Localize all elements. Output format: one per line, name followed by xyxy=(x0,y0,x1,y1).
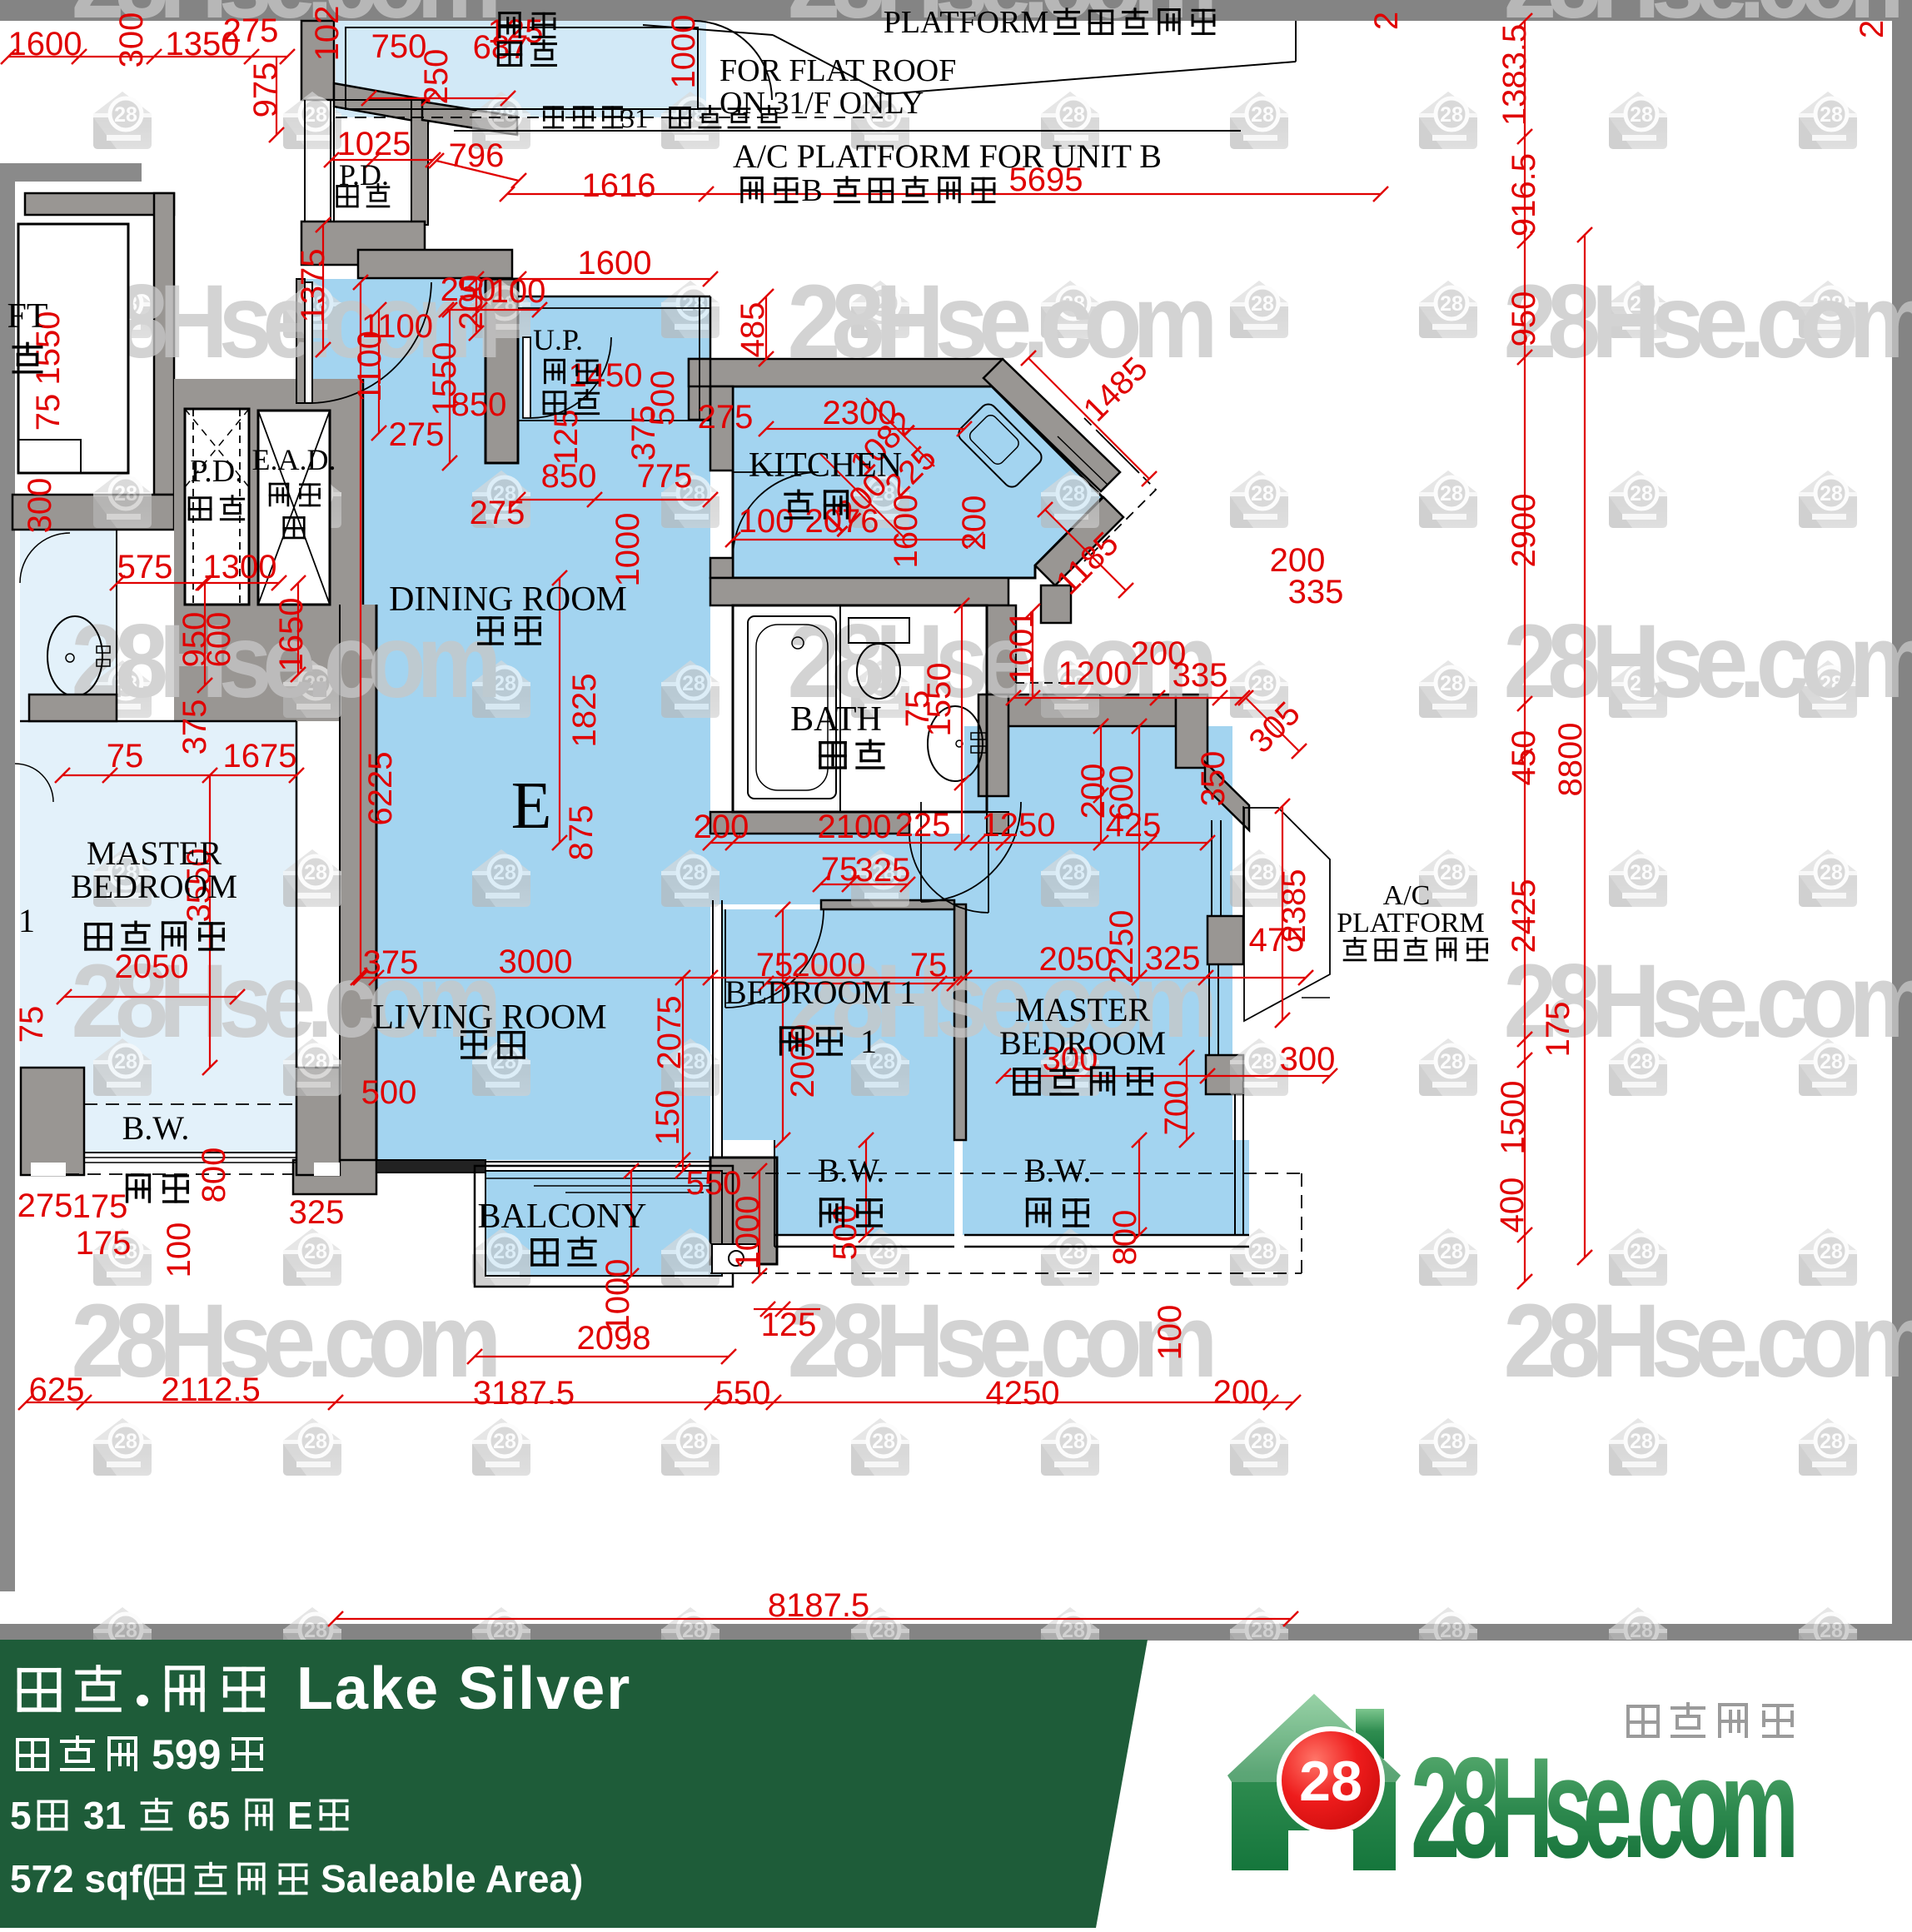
svg-text:200: 200 xyxy=(1131,635,1187,672)
svg-text:275: 275 xyxy=(389,416,445,453)
svg-text:1200: 1200 xyxy=(1058,655,1133,692)
svg-text:550: 550 xyxy=(715,1375,771,1412)
svg-text:P.D.: P.D. xyxy=(190,454,242,489)
svg-text:150: 150 xyxy=(650,1090,686,1146)
svg-text:KITCHEN: KITCHEN xyxy=(749,446,902,485)
svg-text:796: 796 xyxy=(449,137,505,174)
svg-text:28Hse.com: 28Hse.com xyxy=(1503,1283,1912,1399)
svg-text:350: 350 xyxy=(1195,751,1232,807)
svg-text:BALCONY: BALCONY xyxy=(477,1198,646,1236)
svg-text:1: 1 xyxy=(18,902,35,939)
svg-text:950: 950 xyxy=(1506,291,1542,347)
svg-text:450: 450 xyxy=(1506,730,1542,786)
svg-text:75: 75 xyxy=(821,851,859,888)
svg-text:28Hse.com: 28Hse.com xyxy=(1503,0,1912,40)
svg-text:28Hse.com: 28Hse.com xyxy=(71,1283,501,1399)
svg-text:U.P.: U.P. xyxy=(533,323,583,356)
svg-text:2: 2 xyxy=(1368,12,1405,30)
svg-text:500: 500 xyxy=(361,1074,417,1111)
svg-text:1825: 1825 xyxy=(566,674,603,748)
svg-text:400: 400 xyxy=(1494,1178,1531,1233)
svg-text:1600: 1600 xyxy=(8,26,82,62)
svg-text:1100: 1100 xyxy=(351,331,388,402)
svg-text:31: 31 xyxy=(621,104,649,134)
svg-text:1375: 1375 xyxy=(295,249,331,323)
svg-text:ON 31/F ONLY: ON 31/F ONLY xyxy=(719,86,924,121)
svg-text:6225: 6225 xyxy=(362,752,399,826)
svg-text:75: 75 xyxy=(13,1006,50,1043)
svg-text:200: 200 xyxy=(453,275,490,331)
svg-text:375: 375 xyxy=(177,700,213,755)
svg-text:975: 975 xyxy=(247,62,284,118)
svg-text:275: 275 xyxy=(17,1188,73,1224)
svg-text:175: 175 xyxy=(1540,1002,1576,1058)
svg-text:225: 225 xyxy=(895,807,951,844)
svg-text:275: 275 xyxy=(470,495,525,531)
svg-text:250: 250 xyxy=(418,49,455,105)
svg-text:1: 1 xyxy=(860,1023,877,1060)
svg-text:1001: 1001 xyxy=(1003,610,1040,685)
svg-text:B.W.: B.W. xyxy=(818,1152,885,1189)
svg-text:485: 485 xyxy=(734,302,771,358)
svg-text:2250: 2250 xyxy=(1103,910,1140,984)
svg-text:875: 875 xyxy=(563,805,600,861)
svg-text:1450: 1450 xyxy=(569,357,643,394)
svg-text:1000: 1000 xyxy=(610,513,646,587)
svg-text:1000: 1000 xyxy=(729,1196,766,1270)
svg-text:800: 800 xyxy=(196,1148,232,1203)
svg-text:2050: 2050 xyxy=(115,949,189,985)
svg-text:100: 100 xyxy=(1152,1305,1188,1361)
svg-text:275: 275 xyxy=(698,399,754,436)
svg-text:2385: 2385 xyxy=(1276,869,1312,944)
svg-text:DINING ROOM: DINING ROOM xyxy=(389,580,627,619)
svg-text:75: 75 xyxy=(30,394,67,431)
svg-text:28Hse.com: 28Hse.com xyxy=(787,264,1217,380)
svg-text:Saleable Area): Saleable Area) xyxy=(321,1857,583,1900)
svg-text:500: 500 xyxy=(645,371,681,426)
svg-text:1500: 1500 xyxy=(1495,1081,1531,1155)
svg-text:E: E xyxy=(287,1794,313,1837)
svg-text:1616: 1616 xyxy=(582,167,656,204)
svg-text:2: 2 xyxy=(1854,20,1890,38)
svg-text:1250: 1250 xyxy=(982,807,1056,844)
svg-text:300: 300 xyxy=(113,12,150,68)
svg-text:BEDROOM: BEDROOM xyxy=(71,868,237,905)
svg-text:775: 775 xyxy=(637,458,693,495)
svg-text:599: 599 xyxy=(152,1731,221,1778)
svg-text:1550: 1550 xyxy=(426,342,463,416)
svg-text:Lake Silver: Lake Silver xyxy=(296,1656,631,1722)
svg-text:8187.5: 8187.5 xyxy=(768,1587,869,1624)
svg-text:28Hse.com: 28Hse.com xyxy=(1503,264,1912,380)
svg-text:1650: 1650 xyxy=(273,598,310,672)
svg-text:B: B xyxy=(801,173,822,208)
svg-text:275: 275 xyxy=(223,12,279,49)
svg-text:3187.5: 3187.5 xyxy=(473,1375,575,1412)
svg-text:200: 200 xyxy=(956,495,993,551)
svg-text:5: 5 xyxy=(10,1794,32,1837)
svg-text:200: 200 xyxy=(1213,1374,1269,1411)
svg-text:2100: 2100 xyxy=(818,809,892,845)
svg-text:BEDROOM 1: BEDROOM 1 xyxy=(724,973,916,1011)
svg-text:100: 100 xyxy=(161,1222,197,1278)
svg-text:102: 102 xyxy=(309,6,346,62)
svg-text:175: 175 xyxy=(72,1188,128,1225)
svg-text:575: 575 xyxy=(117,549,173,585)
svg-text:B.W.: B.W. xyxy=(1024,1152,1092,1189)
svg-text:3000: 3000 xyxy=(499,944,573,980)
svg-text:125: 125 xyxy=(548,410,585,466)
svg-text:300: 300 xyxy=(22,478,58,534)
svg-text:28: 28 xyxy=(1299,1750,1362,1813)
svg-text:916.5: 916.5 xyxy=(1506,153,1542,237)
svg-text:1300: 1300 xyxy=(203,549,277,585)
svg-text:1675: 1675 xyxy=(223,738,297,774)
svg-text:31: 31 xyxy=(83,1794,126,1837)
svg-text:A/C: A/C xyxy=(1383,880,1431,911)
svg-text:200: 200 xyxy=(694,809,749,845)
svg-text:600: 600 xyxy=(1103,765,1140,821)
svg-text:E: E xyxy=(511,769,552,843)
svg-text:335: 335 xyxy=(1288,574,1344,610)
svg-text:A/C PLATFORM FOR UNIT B: A/C PLATFORM FOR UNIT B xyxy=(733,137,1162,175)
svg-text:B.W.: B.W. xyxy=(122,1109,190,1147)
svg-text:75: 75 xyxy=(107,738,144,774)
svg-text:2075: 2075 xyxy=(651,996,688,1070)
svg-text:100: 100 xyxy=(739,503,794,540)
svg-text:BATH: BATH xyxy=(790,700,882,739)
svg-text:MASTER: MASTER xyxy=(1015,991,1151,1028)
svg-text:MASTER: MASTER xyxy=(87,834,222,872)
svg-text:2425: 2425 xyxy=(1506,879,1542,954)
svg-text:325: 325 xyxy=(1145,940,1201,977)
svg-text:600: 600 xyxy=(201,612,237,668)
svg-text:175: 175 xyxy=(76,1225,132,1262)
svg-text:FT: FT xyxy=(7,297,47,336)
svg-text:325: 325 xyxy=(855,852,911,889)
svg-text:800: 800 xyxy=(1107,1210,1143,1266)
svg-text:1025: 1025 xyxy=(337,126,411,162)
svg-text:28Hse.com: 28Hse.com xyxy=(1411,1728,1799,1888)
svg-text:E.A.D.: E.A.D. xyxy=(252,443,336,476)
svg-text:572 sqf(: 572 sqf( xyxy=(10,1857,156,1900)
svg-text:1000: 1000 xyxy=(665,15,702,89)
svg-text:325: 325 xyxy=(289,1194,345,1231)
svg-text:2900: 2900 xyxy=(1506,494,1542,568)
svg-text:LIVING ROOM: LIVING ROOM xyxy=(372,998,606,1037)
svg-text:1000: 1000 xyxy=(600,1259,636,1333)
svg-text:8800: 8800 xyxy=(1552,723,1589,797)
svg-text:65: 65 xyxy=(187,1794,230,1837)
svg-text:75: 75 xyxy=(899,690,936,728)
svg-text:4250: 4250 xyxy=(986,1375,1060,1412)
svg-text:1600: 1600 xyxy=(888,495,924,569)
svg-text:PLATFORM: PLATFORM xyxy=(1337,908,1485,939)
svg-text:100: 100 xyxy=(490,273,546,310)
svg-text:1600: 1600 xyxy=(578,245,652,281)
svg-text:FOR FLAT ROOF: FOR FLAT ROOF xyxy=(719,53,956,88)
svg-text:2112.5: 2112.5 xyxy=(161,1372,260,1408)
svg-text:700: 700 xyxy=(1158,1080,1195,1136)
svg-text:375: 375 xyxy=(363,944,419,981)
svg-text:300: 300 xyxy=(1280,1041,1336,1078)
svg-text:28Hse.com: 28Hse.com xyxy=(1503,604,1912,720)
svg-text:125: 125 xyxy=(761,1307,817,1343)
svg-text:2050: 2050 xyxy=(1039,941,1113,978)
svg-text:1383.5: 1383.5 xyxy=(1496,24,1533,126)
svg-text:PLATFORM: PLATFORM xyxy=(884,5,1049,40)
svg-text:BEDROOM: BEDROOM xyxy=(999,1024,1166,1062)
svg-text:625: 625 xyxy=(29,1372,85,1408)
